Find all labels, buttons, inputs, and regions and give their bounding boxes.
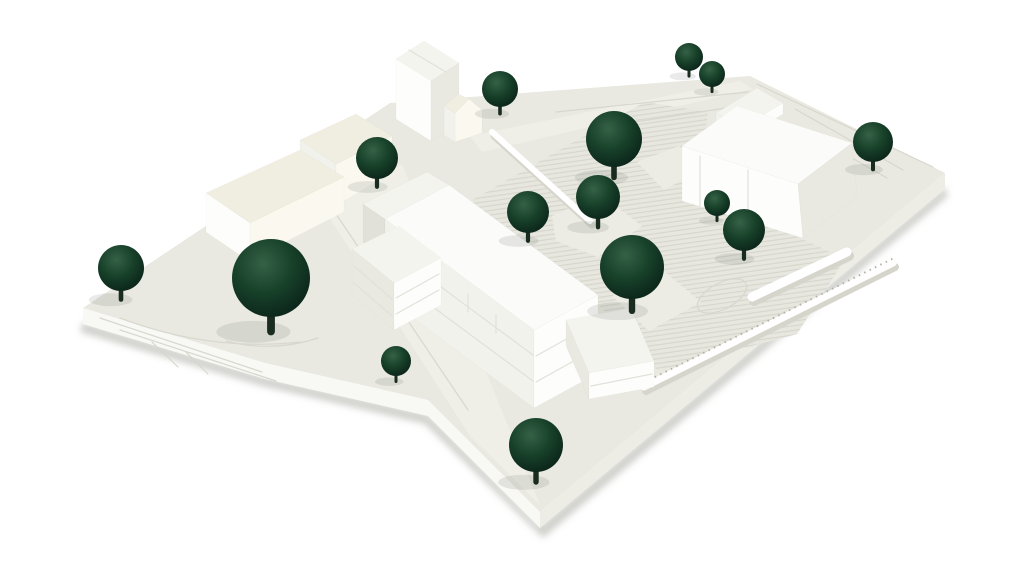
tree-shadow [498,475,549,490]
tree-ball [699,61,725,87]
tree-ball [586,111,642,167]
tree-ball [600,235,664,299]
tree-shadow [587,302,648,320]
tree-shadow [348,181,388,193]
tree-ball [576,175,620,219]
tree-ball [675,43,703,71]
tree-shadow [694,88,719,95]
tree-ball [509,418,563,472]
tree-shadow [669,72,696,80]
tree-shadow [375,378,404,386]
tree-shadow [89,293,133,306]
tree-ball [381,346,411,376]
tree-ball [723,209,765,251]
model-tree [669,43,703,80]
tree-shadow [475,109,509,119]
tree-ball [98,245,144,291]
tree-shadow [715,253,755,265]
tree-ball [853,122,893,162]
tree-shadow [499,235,539,247]
tree-shadow [567,221,609,233]
architectural-model-photo [0,0,1024,576]
tree-ball [507,191,549,233]
tree-shadow [845,164,883,175]
tree-ball [482,71,518,107]
tree-shadow [699,217,724,224]
tree-ball [704,190,730,216]
tree-shadow [216,321,290,343]
model-scene [0,0,1024,576]
tree-ball [232,239,310,317]
tree-ball [356,137,398,179]
